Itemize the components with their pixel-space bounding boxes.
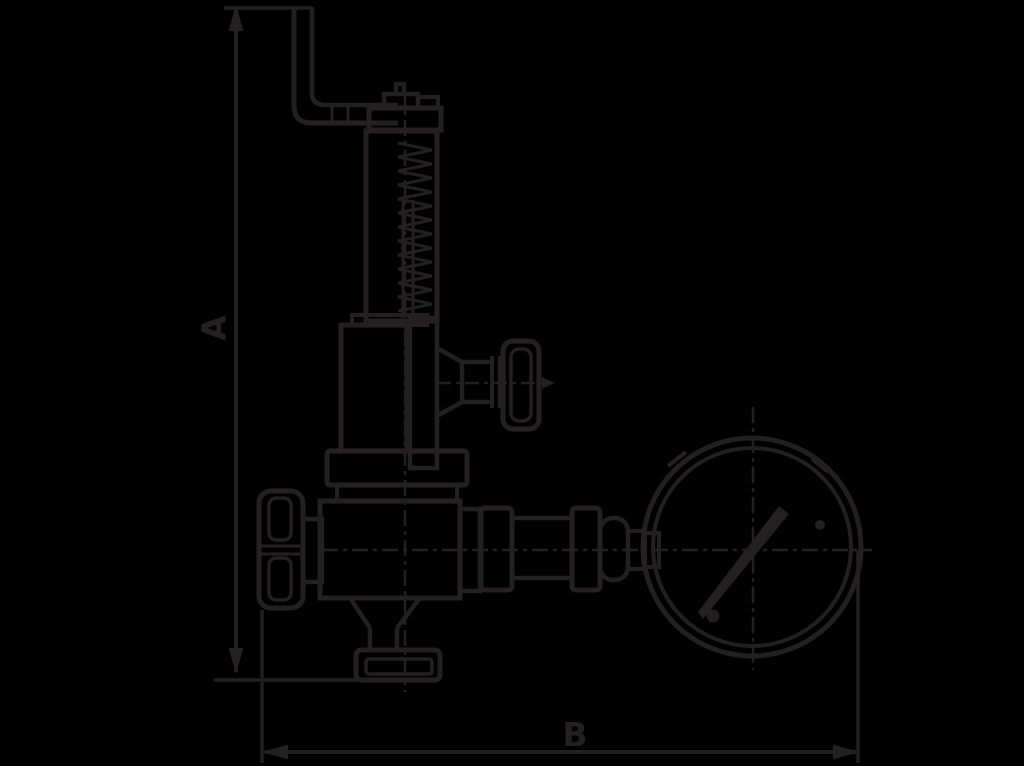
technical-drawing-canvas: A B <box>0 0 1024 766</box>
dimension-label-a: A <box>195 315 234 341</box>
valve-dimension-drawing: A B <box>0 0 1024 766</box>
gauge-marker-dot <box>815 520 825 530</box>
gauge-needle-hub-dot <box>707 610 720 623</box>
dimension-label-b: B <box>562 715 587 754</box>
